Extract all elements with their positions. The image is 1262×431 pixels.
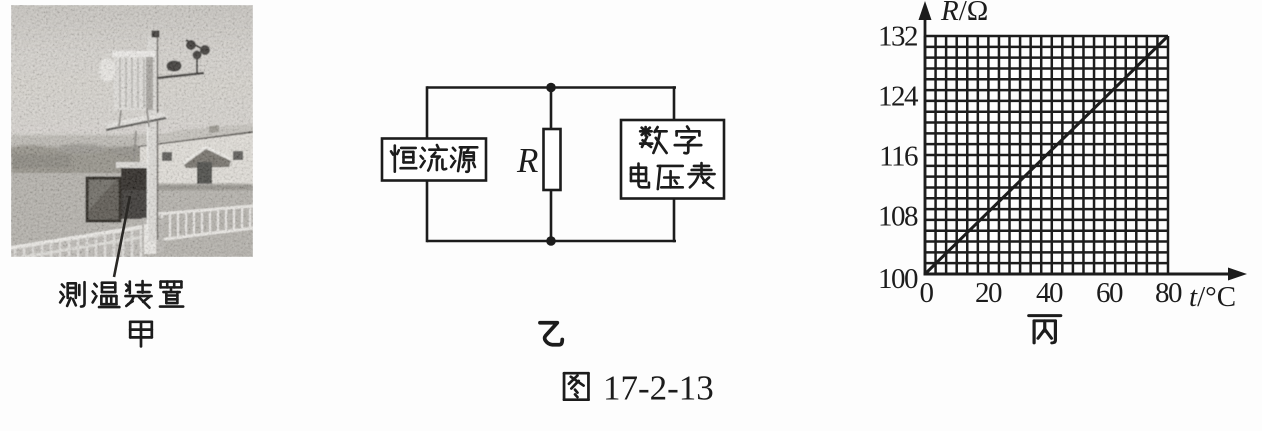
svg-text:20: 20 [975,277,1002,309]
svg-text:40: 40 [1036,277,1063,309]
svg-text:108: 108 [880,201,918,233]
svg-text:60: 60 [1096,277,1123,309]
svg-text:17-2-13: 17-2-13 [603,369,714,407]
svg-text:R: R [516,141,538,180]
svg-text:116: 116 [880,141,918,173]
svg-text:132: 132 [880,21,917,53]
svg-text:0: 0 [920,277,934,309]
svg-text:100: 100 [880,263,918,295]
svg-text:124: 124 [880,81,919,113]
svg-text:t/°C: t/°C [1189,281,1236,313]
svg-text:80: 80 [1155,277,1182,309]
svg-text:R/Ω: R/Ω [940,0,988,27]
